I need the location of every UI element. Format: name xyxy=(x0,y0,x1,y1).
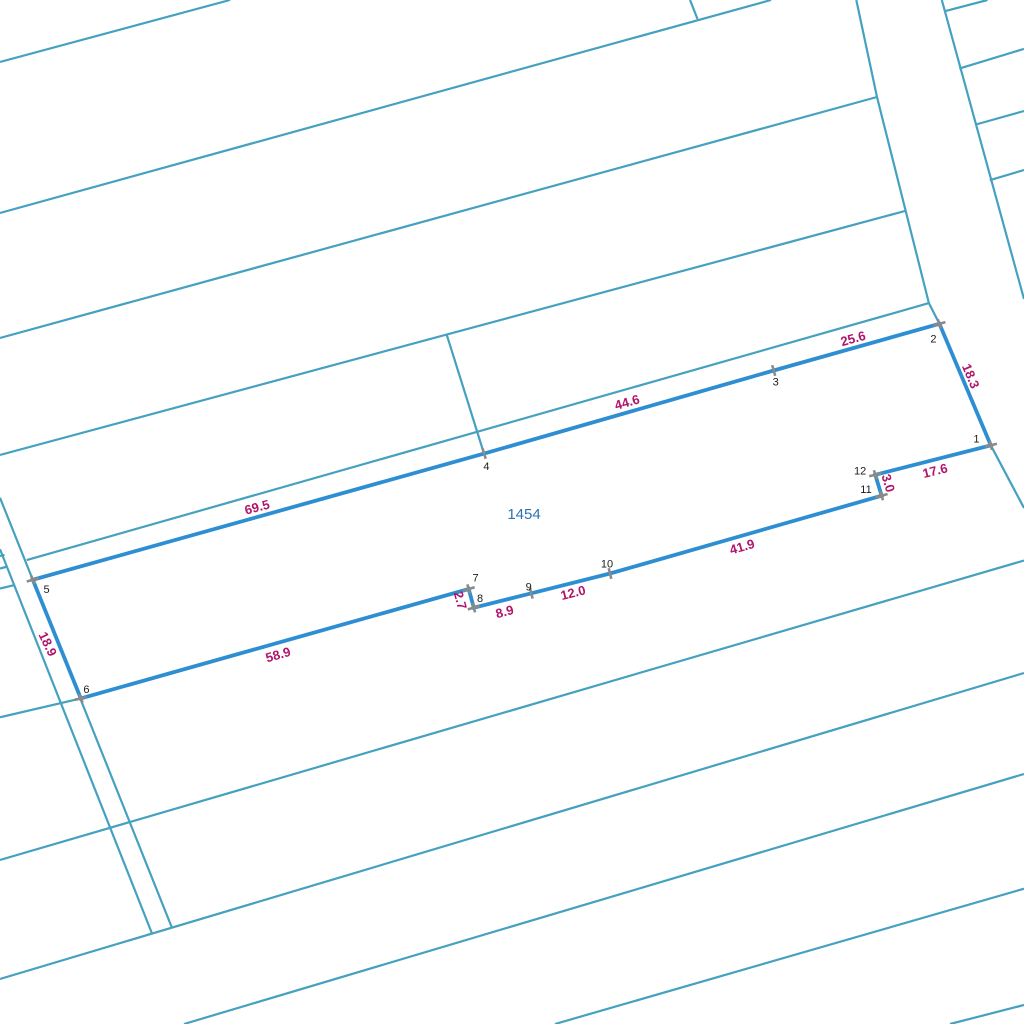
svg-text:1: 1 xyxy=(973,433,979,445)
svg-text:1454: 1454 xyxy=(507,506,540,523)
svg-text:9: 9 xyxy=(526,582,532,594)
svg-text:3: 3 xyxy=(773,377,779,389)
svg-text:5: 5 xyxy=(43,584,49,596)
svg-text:7: 7 xyxy=(473,573,479,585)
svg-text:11: 11 xyxy=(860,484,871,496)
svg-text:8: 8 xyxy=(477,593,483,605)
svg-text:12: 12 xyxy=(854,466,866,478)
svg-text:6: 6 xyxy=(83,684,89,696)
svg-text:4: 4 xyxy=(483,461,489,473)
svg-text:10: 10 xyxy=(601,559,613,571)
svg-text:2: 2 xyxy=(930,333,936,345)
